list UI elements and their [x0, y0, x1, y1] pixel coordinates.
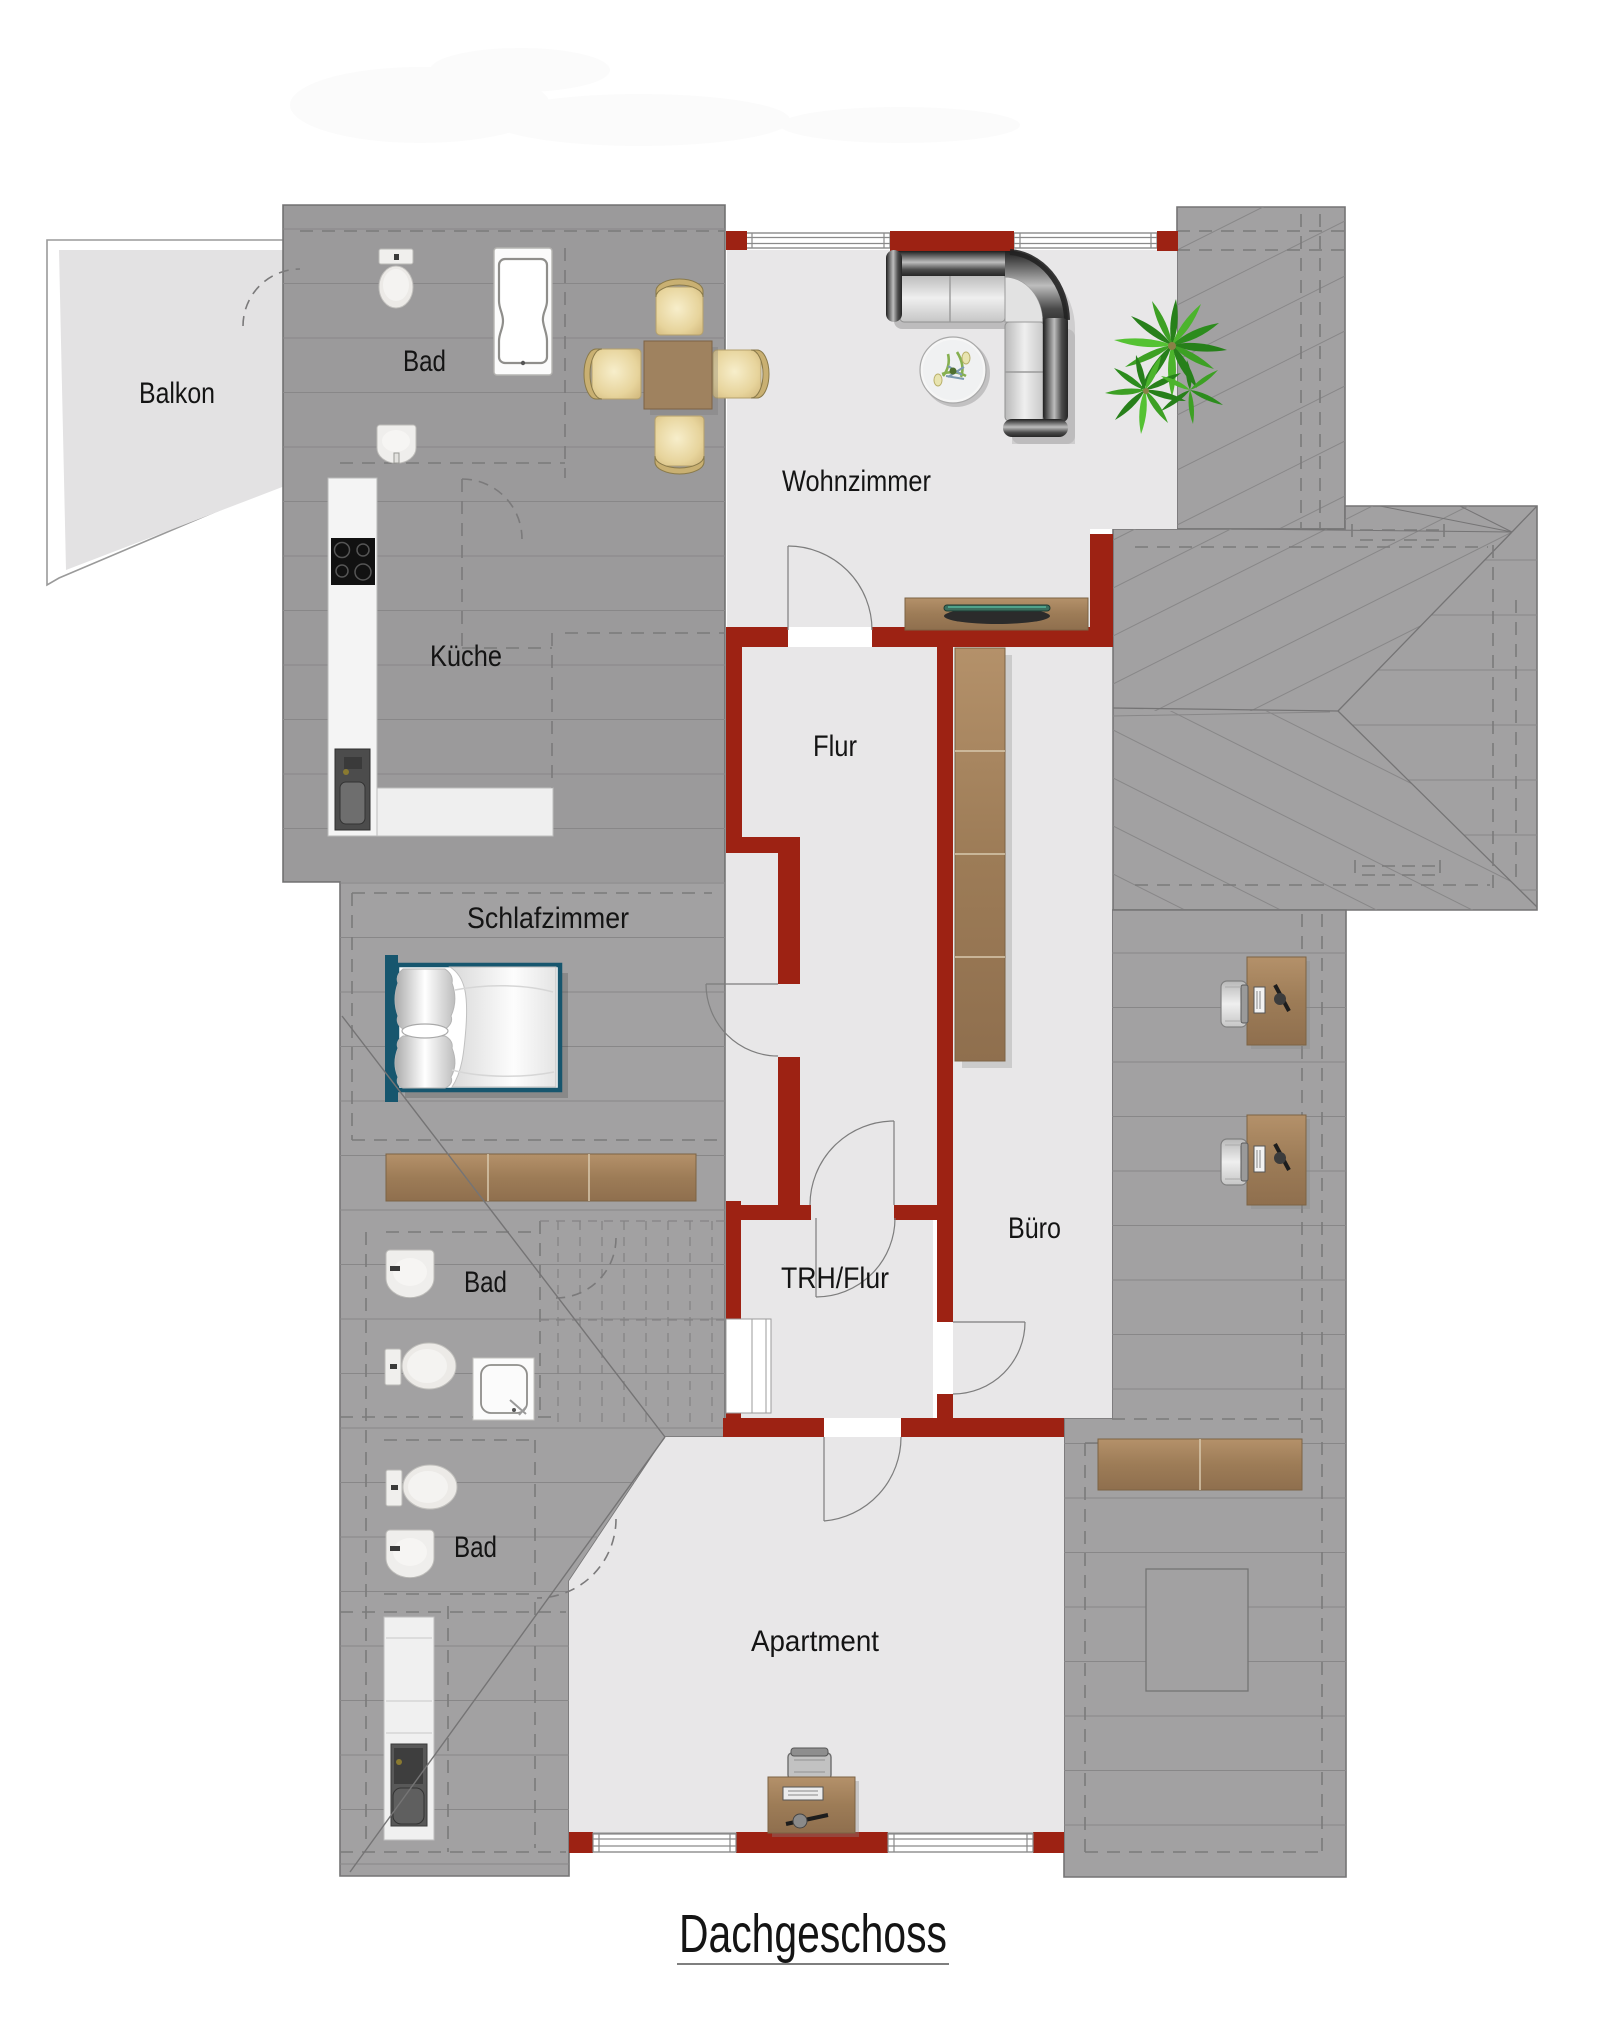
svg-text:TRH/Flur: TRH/Flur: [781, 1262, 889, 1295]
svg-text:Küche: Küche: [430, 640, 502, 673]
svg-text:Apartment: Apartment: [751, 1625, 880, 1658]
svg-text:Bad: Bad: [403, 345, 446, 378]
svg-text:Flur: Flur: [813, 730, 857, 763]
svg-text:Balkon: Balkon: [139, 377, 215, 410]
svg-text:Schlafzimmer: Schlafzimmer: [467, 902, 629, 935]
svg-text:Bad: Bad: [454, 1531, 497, 1564]
svg-text:Bad: Bad: [464, 1266, 507, 1299]
svg-text:Dachgeschoss: Dachgeschoss: [679, 1904, 947, 1964]
svg-text:Büro: Büro: [1008, 1212, 1061, 1245]
svg-text:Wohnzimmer: Wohnzimmer: [782, 465, 931, 498]
